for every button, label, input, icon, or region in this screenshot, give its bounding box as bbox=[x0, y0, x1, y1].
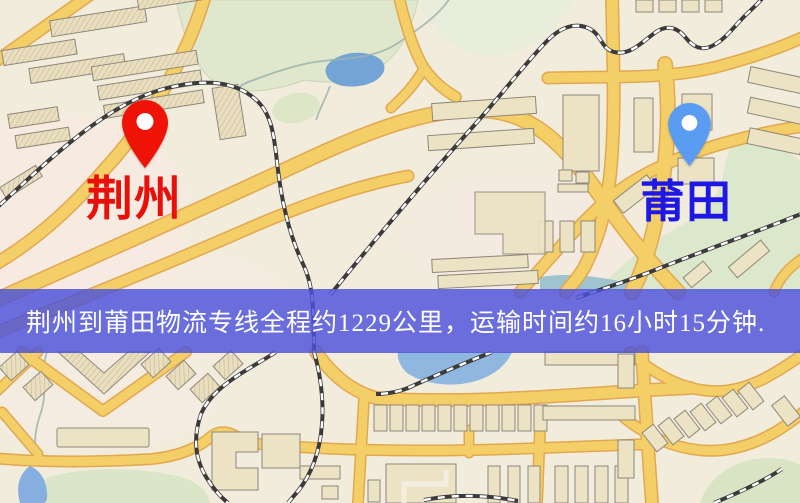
route-banner-text: 荆州到莆田物流专线全程约1229公里，运输时间约16小时15分钟. bbox=[26, 303, 765, 339]
red-map-pin-hole bbox=[137, 113, 154, 130]
blue-map-pin-hole bbox=[682, 115, 698, 131]
red-map-pin-body bbox=[122, 100, 168, 168]
blue-map-pin-body bbox=[668, 103, 711, 166]
map-canvas bbox=[0, 0, 800, 503]
route-banner: 荆州到莆田物流专线全程约1229公里，运输时间约16小时15分钟. bbox=[0, 289, 800, 353]
destination-label: 莆田 bbox=[640, 180, 732, 225]
map-image: 荆州 莆田 荆州到莆田物流专线全程约1229公里，运输时间约16小时15分钟. bbox=[0, 0, 800, 503]
red-map-pin bbox=[122, 100, 168, 168]
origin-label: 荆州 bbox=[86, 177, 182, 224]
blue-map-pin bbox=[668, 103, 711, 166]
